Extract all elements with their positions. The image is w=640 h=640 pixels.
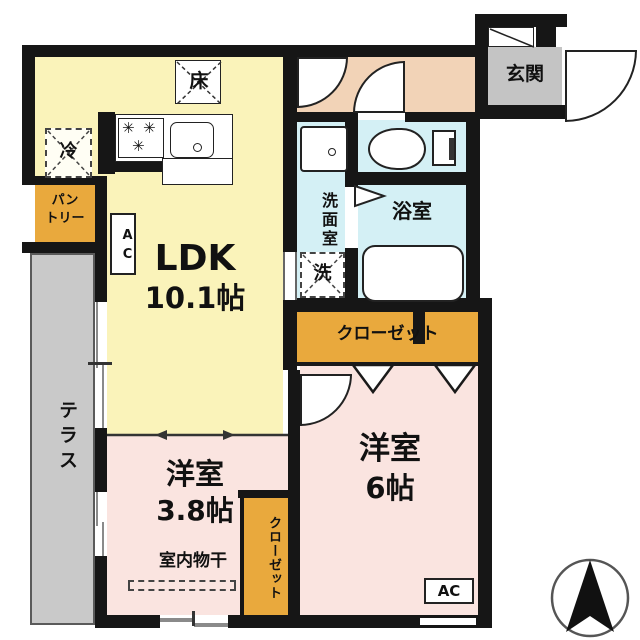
stove-burner-icon: ✳ xyxy=(122,121,135,136)
wall xyxy=(283,57,297,252)
washbasin-drain xyxy=(328,148,336,156)
terrace-window-ldk xyxy=(95,302,107,428)
window-tick xyxy=(192,611,195,626)
stove-burner-icon: ✳ xyxy=(143,121,156,136)
washroom-label: 洗面室 xyxy=(305,180,337,260)
wall xyxy=(22,45,35,185)
sink-drain xyxy=(193,143,202,152)
kitchen-sink xyxy=(170,122,214,158)
bedroom-a-size-label: 3.8帖 xyxy=(105,495,285,527)
toilet-bowl xyxy=(368,128,426,170)
wall xyxy=(475,105,567,119)
kitchen-counter-lower xyxy=(162,158,233,185)
pantry-label-line2: トリー xyxy=(35,210,95,228)
floor-storage-label: 床 xyxy=(176,71,222,93)
wall xyxy=(475,14,567,27)
wall xyxy=(475,14,488,117)
wall xyxy=(95,428,107,492)
bath-label: 浴室 xyxy=(372,200,452,223)
floor-storage-box: 床 xyxy=(175,60,221,104)
washbasin xyxy=(300,126,348,172)
wall xyxy=(466,112,480,312)
wall xyxy=(22,45,480,57)
wall xyxy=(95,556,107,628)
bottom-window-bedroom-b xyxy=(420,618,476,625)
window-tick xyxy=(88,362,112,365)
bathtub xyxy=(362,245,464,302)
stove: ✳ ✳ ✳ xyxy=(118,118,164,158)
ac-unit-bedroom-b: AC xyxy=(424,578,474,604)
wall xyxy=(536,27,556,47)
refrigerator-label: 冷 xyxy=(47,142,90,163)
refrigerator-box: 冷 xyxy=(45,128,92,178)
entrance-label: 玄関 xyxy=(490,64,560,86)
bedroom-b-size-label: 6帖 xyxy=(310,472,470,505)
indoor-drying-label: 室内物干 xyxy=(118,552,268,572)
ldk-size-label: 10.1帖 xyxy=(100,282,290,315)
indoor-drying-rail xyxy=(128,580,236,591)
door-arc-entrance xyxy=(565,50,637,122)
floor-plan: ✳ ✳ ✳ 床 冷 洗 xyxy=(0,0,640,640)
pantry-label: パン トリー xyxy=(35,192,95,228)
bedroom-b-label: 洋室 xyxy=(310,432,470,468)
wall xyxy=(288,370,300,628)
closet-main-label: クローゼット xyxy=(300,325,475,345)
shoe-cabinet xyxy=(488,27,534,47)
washer-label: 洗 xyxy=(302,264,343,285)
terrace-label: テラス xyxy=(47,382,77,492)
stove-burner-icon: ✳ xyxy=(132,139,145,154)
pantry-label-line1: パン xyxy=(35,192,95,210)
room-boundary-marker xyxy=(107,429,288,441)
north-compass-icon xyxy=(548,556,632,640)
toilet-tank xyxy=(432,130,456,166)
wall xyxy=(478,298,492,628)
bedroom-a-label: 洋室 xyxy=(110,458,280,491)
ldk-label: LDK xyxy=(120,238,270,279)
